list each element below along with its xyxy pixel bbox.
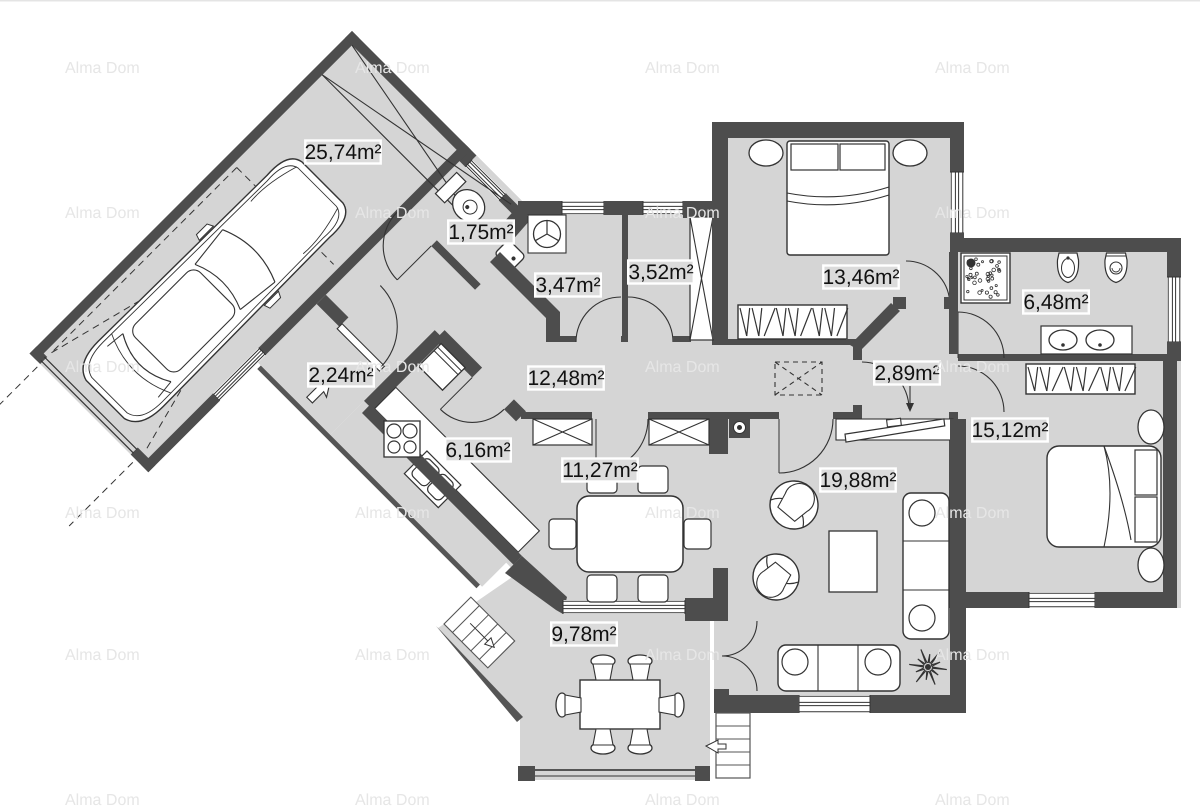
svg-text:19,88m²: 19,88m² <box>819 469 896 492</box>
svg-text:Alma Dom: Alma Dom <box>65 647 140 664</box>
svg-text:3,52m²: 3,52m² <box>628 261 693 284</box>
svg-text:Alma Dom: Alma Dom <box>645 205 720 222</box>
svg-text:Alma Dom: Alma Dom <box>935 60 1010 77</box>
svg-text:3,47m²: 3,47m² <box>535 274 600 297</box>
svg-text:Alma Dom: Alma Dom <box>355 359 430 376</box>
svg-text:Alma Dom: Alma Dom <box>65 359 140 376</box>
svg-text:13,46m²: 13,46m² <box>822 266 899 289</box>
svg-text:Alma Dom: Alma Dom <box>355 205 430 222</box>
svg-text:Alma Dom: Alma Dom <box>65 792 140 809</box>
svg-text:Alma Dom: Alma Dom <box>645 647 720 664</box>
svg-text:2,89m²: 2,89m² <box>874 362 939 385</box>
svg-text:25,74m²: 25,74m² <box>304 141 381 164</box>
svg-text:Alma Dom: Alma Dom <box>935 505 1010 522</box>
svg-text:Alma Dom: Alma Dom <box>355 647 430 664</box>
svg-text:Alma Dom: Alma Dom <box>65 505 140 522</box>
svg-text:Alma Dom: Alma Dom <box>645 359 720 376</box>
svg-text:11,27m²: 11,27m² <box>562 459 637 482</box>
svg-text:Alma Dom: Alma Dom <box>935 359 1010 376</box>
svg-text:6,48m²: 6,48m² <box>1023 291 1088 314</box>
svg-text:Alma Dom: Alma Dom <box>935 647 1010 664</box>
svg-text:15,12m²: 15,12m² <box>971 419 1048 442</box>
svg-text:Alma Dom: Alma Dom <box>355 60 430 77</box>
svg-text:Alma Dom: Alma Dom <box>935 792 1010 809</box>
svg-text:Alma Dom: Alma Dom <box>645 792 720 809</box>
svg-text:Alma Dom: Alma Dom <box>65 205 140 222</box>
svg-text:Alma Dom: Alma Dom <box>935 205 1010 222</box>
svg-text:9,78m²: 9,78m² <box>551 623 616 646</box>
svg-text:Alma Dom: Alma Dom <box>355 792 430 809</box>
svg-text:Alma Dom: Alma Dom <box>645 505 720 522</box>
svg-text:6,16m²: 6,16m² <box>445 439 510 462</box>
svg-text:Alma Dom: Alma Dom <box>355 505 430 522</box>
svg-text:12,48m²: 12,48m² <box>527 367 604 390</box>
svg-text:1,75m²: 1,75m² <box>448 221 513 244</box>
svg-text:Alma Dom: Alma Dom <box>65 60 140 77</box>
svg-text:Alma Dom: Alma Dom <box>645 60 720 77</box>
